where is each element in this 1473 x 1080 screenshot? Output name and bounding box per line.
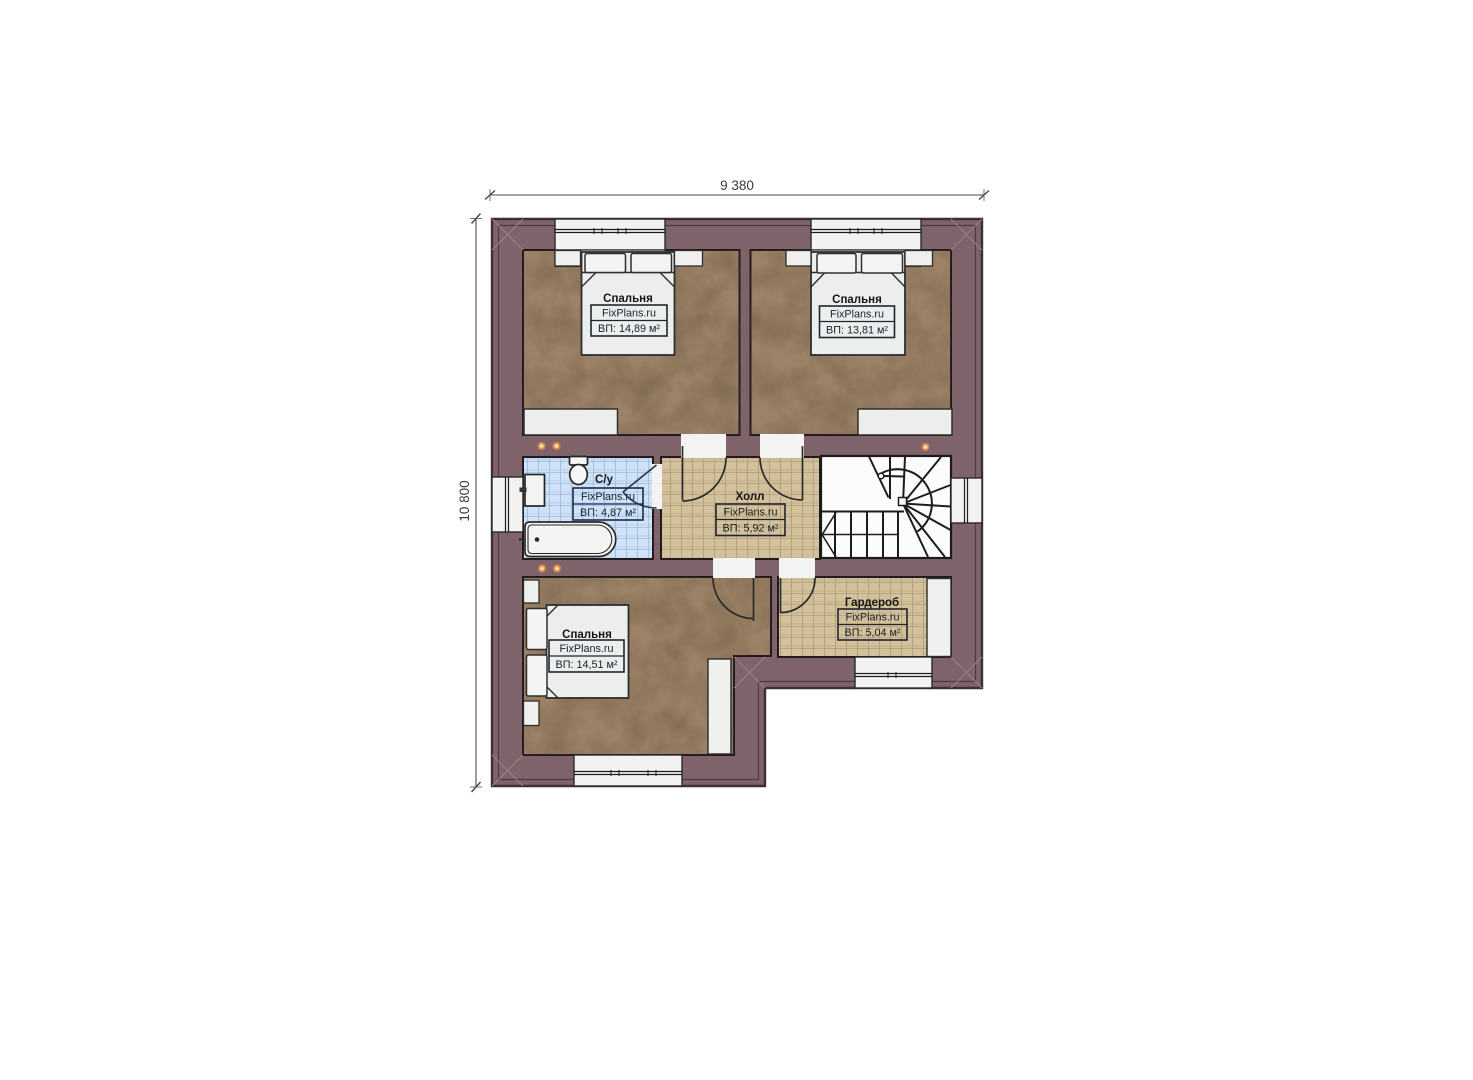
svg-text:FixPlans.ru: FixPlans.ru <box>602 308 656 320</box>
svg-text:ВП: 13,81 м²: ВП: 13,81 м² <box>826 325 888 337</box>
svg-text:FixPlans.ru: FixPlans.ru <box>581 491 635 503</box>
svg-text:ВП: 14,51 м²: ВП: 14,51 м² <box>556 659 618 671</box>
svg-text:FixPlans.ru: FixPlans.ru <box>845 612 899 624</box>
svg-text:10 800: 10 800 <box>457 480 472 521</box>
svg-text:Спальня: Спальня <box>832 294 882 306</box>
svg-text:С/у: С/у <box>595 474 614 486</box>
svg-text:ВП: 5,92 м²: ВП: 5,92 м² <box>723 523 779 535</box>
svg-text:Гардероб: Гардероб <box>845 597 899 609</box>
svg-text:FixPlans.ru: FixPlans.ru <box>723 507 777 519</box>
svg-text:ВП: 14,89 м²: ВП: 14,89 м² <box>598 323 660 335</box>
svg-text:Спальня: Спальня <box>603 293 653 305</box>
svg-text:ВП: 4,87 м²: ВП: 4,87 м² <box>580 507 636 519</box>
svg-text:Холл: Холл <box>736 491 765 503</box>
svg-text:ВП: 5,04 м²: ВП: 5,04 м² <box>845 627 901 639</box>
svg-text:9 380: 9 380 <box>720 178 754 193</box>
svg-text:FixPlans.ru: FixPlans.ru <box>830 309 884 321</box>
svg-text:FixPlans.ru: FixPlans.ru <box>559 643 613 655</box>
